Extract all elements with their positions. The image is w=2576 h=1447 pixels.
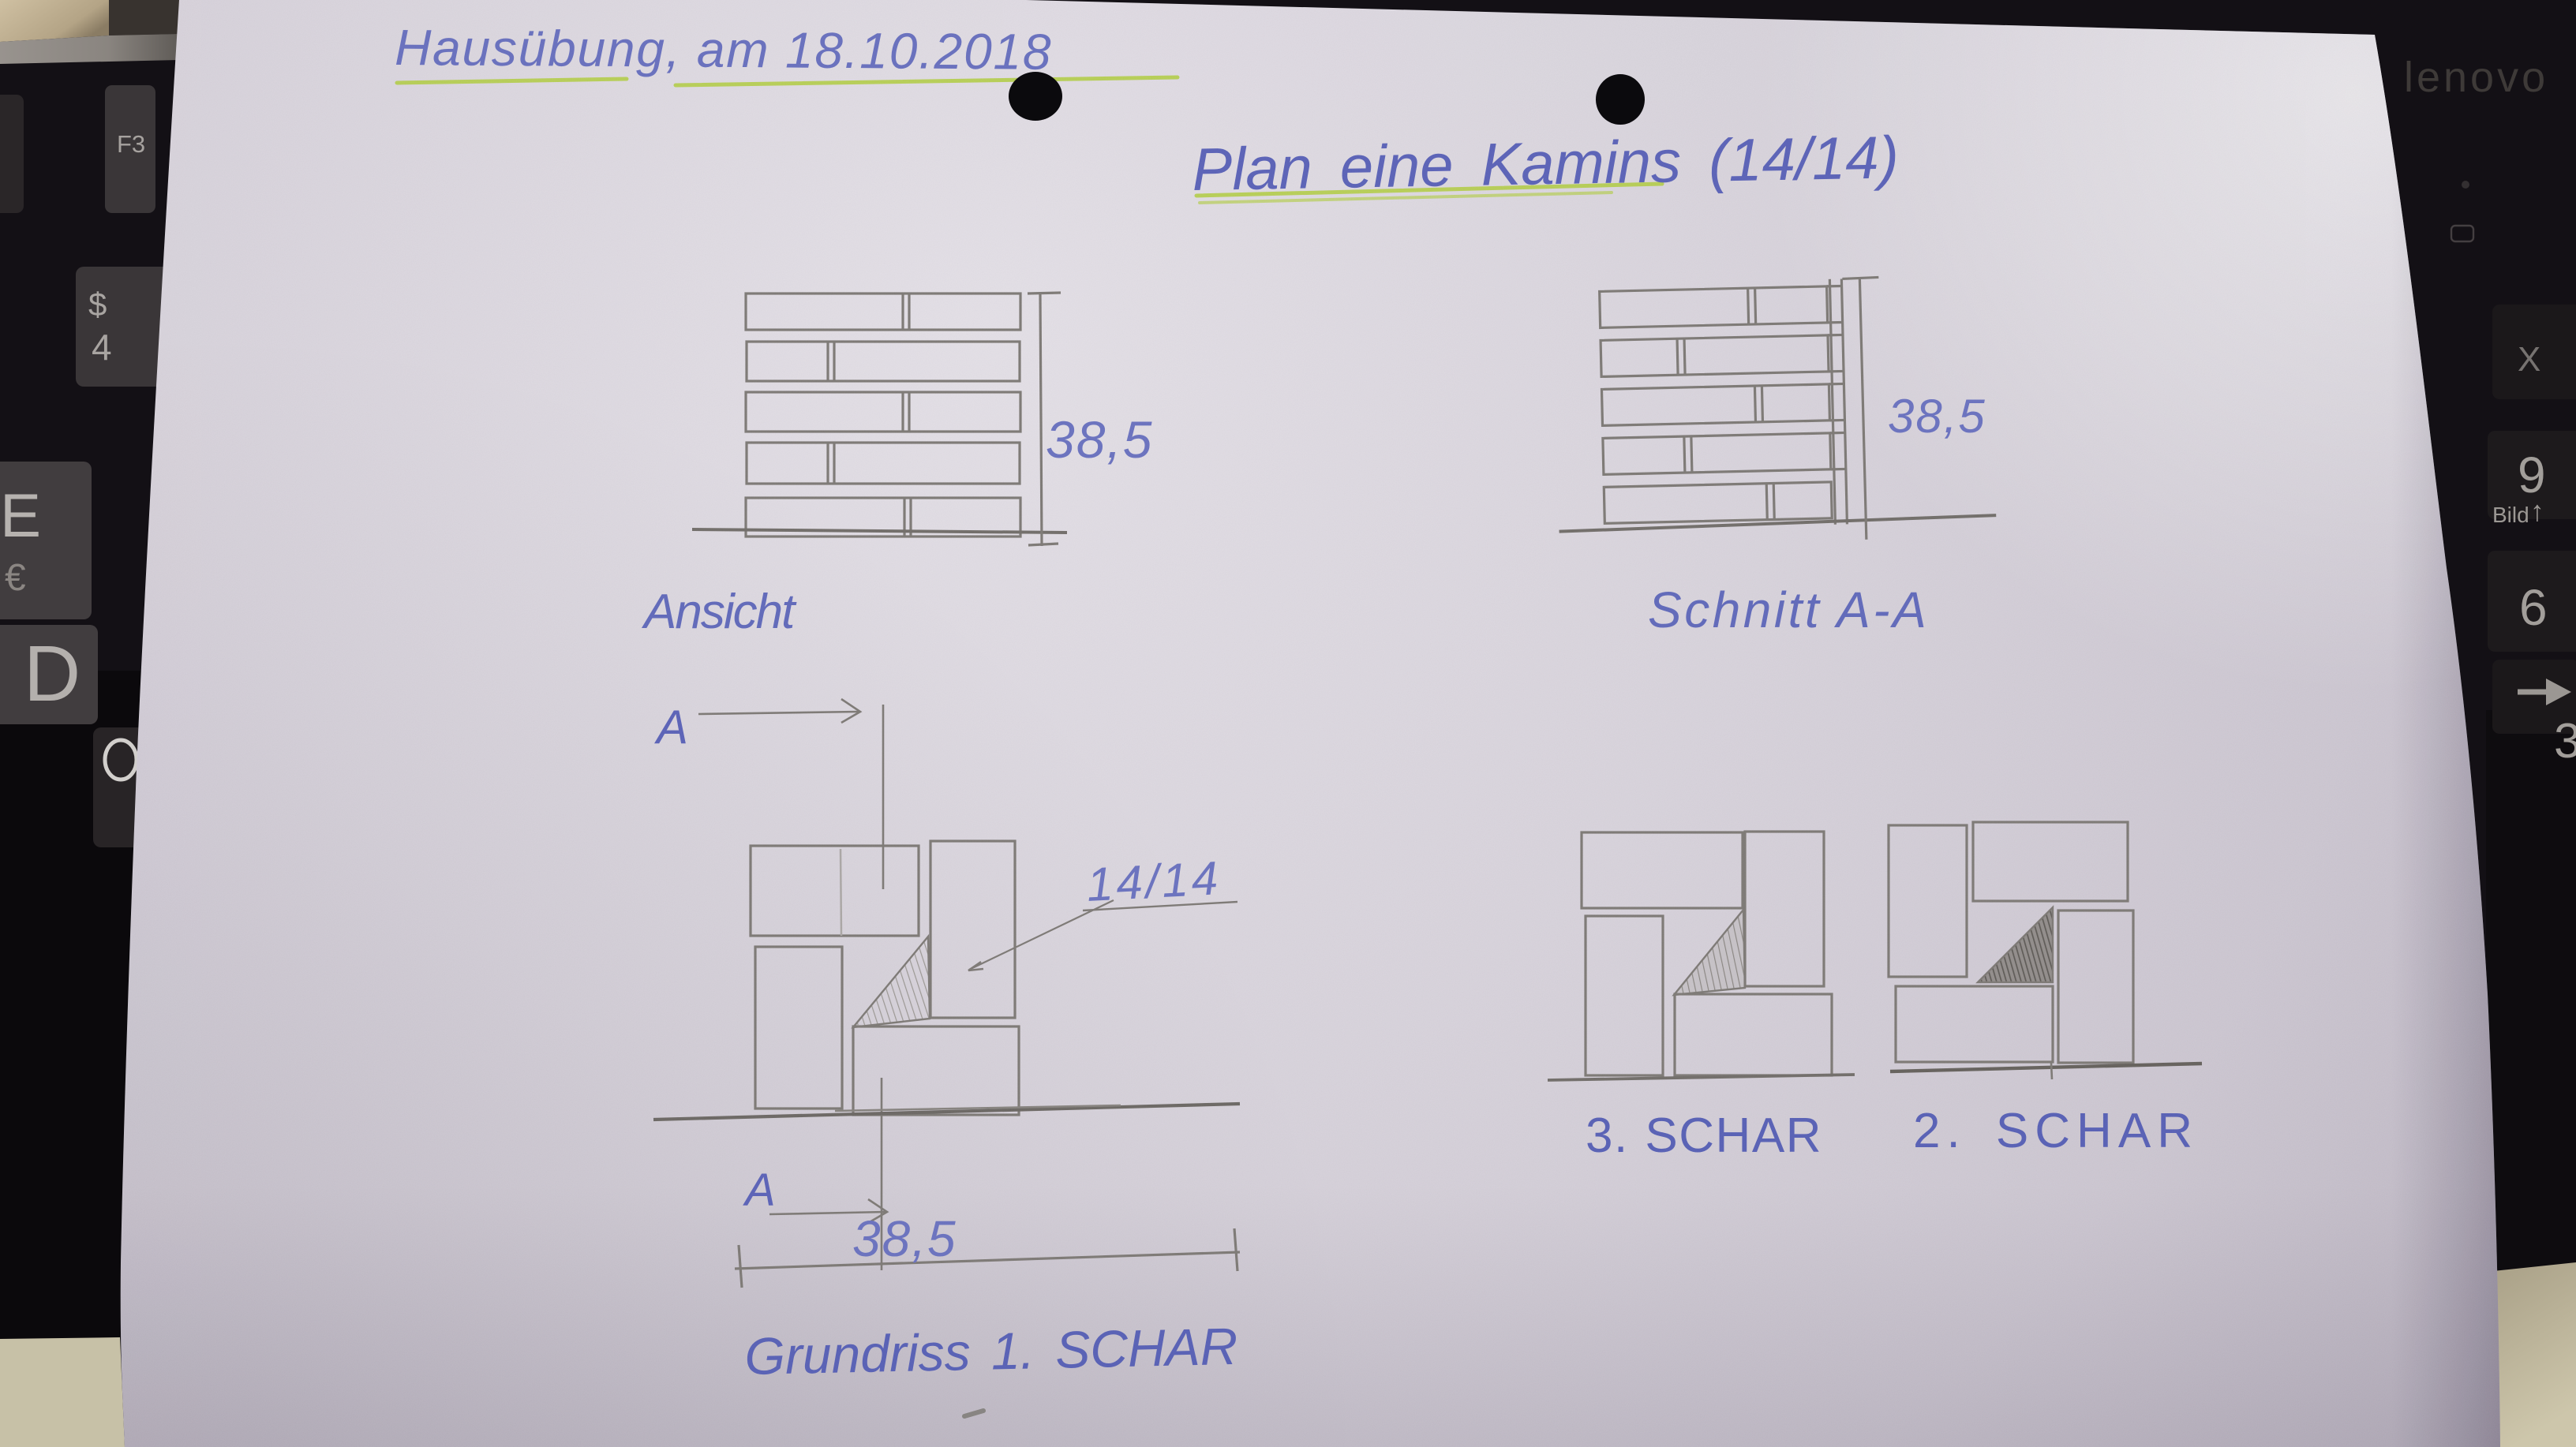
- svg-text:F3: F3: [117, 130, 145, 158]
- svg-text:↑: ↑: [2530, 495, 2544, 527]
- svg-text:€: €: [5, 557, 26, 599]
- svg-text:$: $: [88, 286, 107, 323]
- svg-text:Bild: Bild: [2492, 503, 2529, 527]
- svg-text:X: X: [2518, 340, 2540, 379]
- svg-text:D: D: [24, 630, 80, 718]
- svg-text:6: 6: [2519, 579, 2548, 636]
- svg-text:3: 3: [2554, 714, 2576, 768]
- svg-text:4: 4: [92, 327, 112, 368]
- svg-text:E: E: [0, 480, 41, 550]
- svg-text:lenovo: lenovo: [2404, 54, 2548, 101]
